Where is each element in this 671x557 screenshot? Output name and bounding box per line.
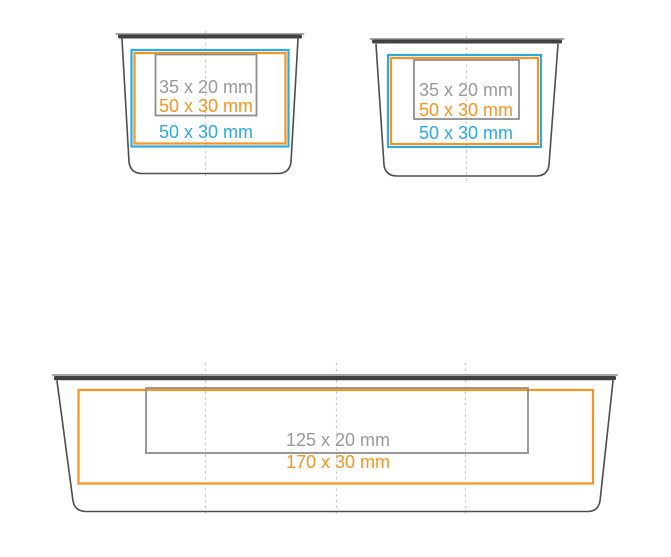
size-label-orange: 50 x 30 mm [419, 100, 513, 120]
cup-rim [372, 40, 562, 44]
size-label-gray: 35 x 20 mm [419, 80, 513, 100]
size-label-blue: 50 x 30 mm [159, 122, 253, 142]
cup-rim [118, 35, 302, 39]
size-label-orange: 50 x 30 mm [159, 96, 253, 116]
tray-rim [54, 376, 616, 380]
size-label-blue: 50 x 30 mm [419, 123, 513, 143]
size-label-orange: 170 x 30 mm [286, 452, 390, 472]
small-cup-right: 35 x 20 mm 50 x 30 mm 50 x 30 mm [370, 36, 565, 181]
diagram-canvas: 35 x 20 mm 50 x 30 mm 50 x 30 mm 35 x 20… [0, 0, 671, 557]
large-tray: 125 x 20 mm 170 x 30 mm [52, 363, 618, 516]
print-area-diagram: 35 x 20 mm 50 x 30 mm 50 x 30 mm 35 x 20… [0, 0, 671, 557]
small-cup-left: 35 x 20 mm 50 x 30 mm 50 x 30 mm [116, 31, 305, 178]
size-label-gray: 35 x 20 mm [159, 77, 253, 97]
tray-rim-lip [52, 374, 618, 376]
size-label-gray: 125 x 20 mm [286, 430, 390, 450]
